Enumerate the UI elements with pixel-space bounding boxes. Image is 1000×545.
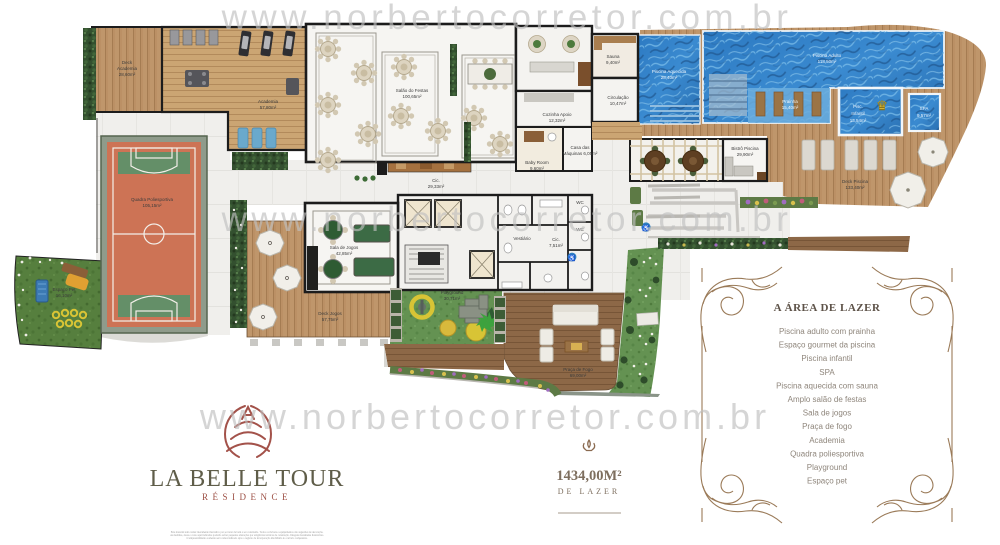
- svg-text:118,50m²: 118,50m²: [818, 59, 837, 64]
- svg-text:Pisc.: Pisc.: [853, 104, 863, 109]
- svg-text:Baby Room: Baby Room: [525, 160, 549, 165]
- svg-text:100,65m²: 100,65m²: [402, 94, 422, 99]
- svg-text:Sala de Jogos: Sala de Jogos: [330, 245, 359, 250]
- svg-text:12,32m²: 12,32m²: [549, 118, 566, 123]
- svg-text:1434,00M²: 1434,00M²: [556, 468, 621, 484]
- svg-text:Academia: Academia: [117, 66, 138, 71]
- svg-text:Casa das: Casa das: [570, 145, 590, 150]
- svg-text:Prainha: Prainha: [782, 99, 798, 104]
- svg-text:29,90m²: 29,90m²: [737, 152, 754, 157]
- svg-text:28,40m²: 28,40m²: [661, 75, 678, 80]
- svg-text:Bistrô Piscina: Bistrô Piscina: [731, 146, 759, 151]
- svg-text:♿: ♿: [568, 254, 576, 262]
- svg-text:Deck Jogos: Deck Jogos: [318, 311, 342, 316]
- svg-text:Quadra poliesportiva: Quadra poliesportiva: [790, 449, 864, 458]
- svg-text:RÉSIDENCE: RÉSIDENCE: [202, 492, 292, 502]
- svg-text:Cic.: Cic.: [432, 178, 440, 183]
- svg-text:Infantil: Infantil: [851, 111, 864, 116]
- svg-text:DE LAZER: DE LAZER: [558, 487, 620, 496]
- svg-text:Sauna: Sauna: [606, 54, 620, 59]
- svg-text:16,10m²: 16,10m²: [56, 293, 73, 298]
- svg-text:10,47m²: 10,47m²: [610, 101, 627, 106]
- svg-text:Piscina adulto com prainha: Piscina adulto com prainha: [779, 327, 876, 336]
- svg-text:Salão do Festas: Salão do Festas: [396, 88, 429, 93]
- svg-text:9,60m²: 9,60m²: [530, 166, 545, 171]
- svg-text:Playground: Playground: [441, 290, 464, 295]
- svg-text:Sala de jogos: Sala de jogos: [803, 409, 851, 418]
- svg-text:Piscina Adulto: Piscina Adulto: [813, 53, 842, 58]
- svg-text:69,00m²: 69,00m²: [570, 373, 587, 378]
- svg-text:105,15m²: 105,15m²: [142, 203, 162, 208]
- svg-text:Praça de Fogo: Praça de Fogo: [563, 367, 593, 372]
- svg-text:Piscina Aquecida: Piscina Aquecida: [652, 69, 687, 74]
- svg-text:29,33m²: 29,33m²: [428, 184, 445, 189]
- svg-text:Piscina aquecida com sauna: Piscina aquecida com sauna: [776, 381, 878, 390]
- svg-text:Espaço gourmet da piscina: Espaço gourmet da piscina: [779, 341, 876, 350]
- svg-text:Amplo salão de festas: Amplo salão de festas: [788, 395, 867, 404]
- svg-text:Quadra Poliesportiva: Quadra Poliesportiva: [131, 197, 174, 202]
- svg-text:7,51m²: 7,51m²: [549, 243, 564, 248]
- svg-text:Academia: Academia: [258, 99, 279, 104]
- svg-text:Piscina infantil: Piscina infantil: [801, 354, 852, 363]
- svg-text:133,40m²: 133,40m²: [845, 185, 865, 190]
- svg-text:Circulação: Circulação: [607, 95, 629, 100]
- svg-text:Academia: Academia: [809, 436, 845, 445]
- svg-text:www.norbertocorretor.com.br: www.norbertocorretor.com.br: [199, 396, 770, 437]
- svg-text:A ÁREA DE LAZER: A ÁREA DE LAZER: [774, 302, 881, 314]
- svg-text:SPA: SPA: [819, 368, 835, 377]
- svg-text:Espaço Pet: Espaço Pet: [52, 287, 76, 292]
- svg-text:9,57m²: 9,57m²: [917, 113, 932, 118]
- svg-text:O empreendimento somente será: O empreendimento somente será comerciali…: [187, 537, 308, 540]
- svg-text:Espaço pet: Espaço pet: [807, 477, 848, 486]
- svg-text:Máquinas 6,05m²: Máquinas 6,05m²: [563, 151, 598, 156]
- svg-text:SPA: SPA: [920, 106, 929, 111]
- svg-text:13,54m²: 13,54m²: [850, 118, 867, 123]
- svg-text:www.norbertocorretor.com.br: www.norbertocorretor.com.br: [221, 0, 793, 37]
- svg-text:LA BELLE TOUR: LA BELLE TOUR: [150, 466, 345, 492]
- svg-text:57,75m²: 57,75m²: [322, 317, 339, 322]
- svg-text:Praça de fogo: Praça de fogo: [802, 422, 852, 431]
- svg-text:9,40m²: 9,40m²: [606, 60, 621, 65]
- svg-text:Deck Piscina: Deck Piscina: [842, 179, 869, 184]
- svg-text:57,80m²: 57,80m²: [260, 105, 277, 110]
- svg-text:15,40m²: 15,40m²: [782, 105, 799, 110]
- svg-text:Deck: Deck: [122, 60, 133, 65]
- svg-text:♛: ♛: [876, 98, 888, 113]
- svg-text:Playground: Playground: [807, 463, 847, 472]
- svg-text:www.norbertocorretor.com.br: www.norbertocorretor.com.br: [221, 200, 793, 239]
- svg-text:30,71m²: 30,71m²: [444, 296, 461, 301]
- svg-text:Cozinha Apoio: Cozinha Apoio: [542, 112, 572, 117]
- svg-text:28,60m²: 28,60m²: [119, 72, 136, 77]
- svg-text:42,85m²: 42,85m²: [336, 251, 353, 256]
